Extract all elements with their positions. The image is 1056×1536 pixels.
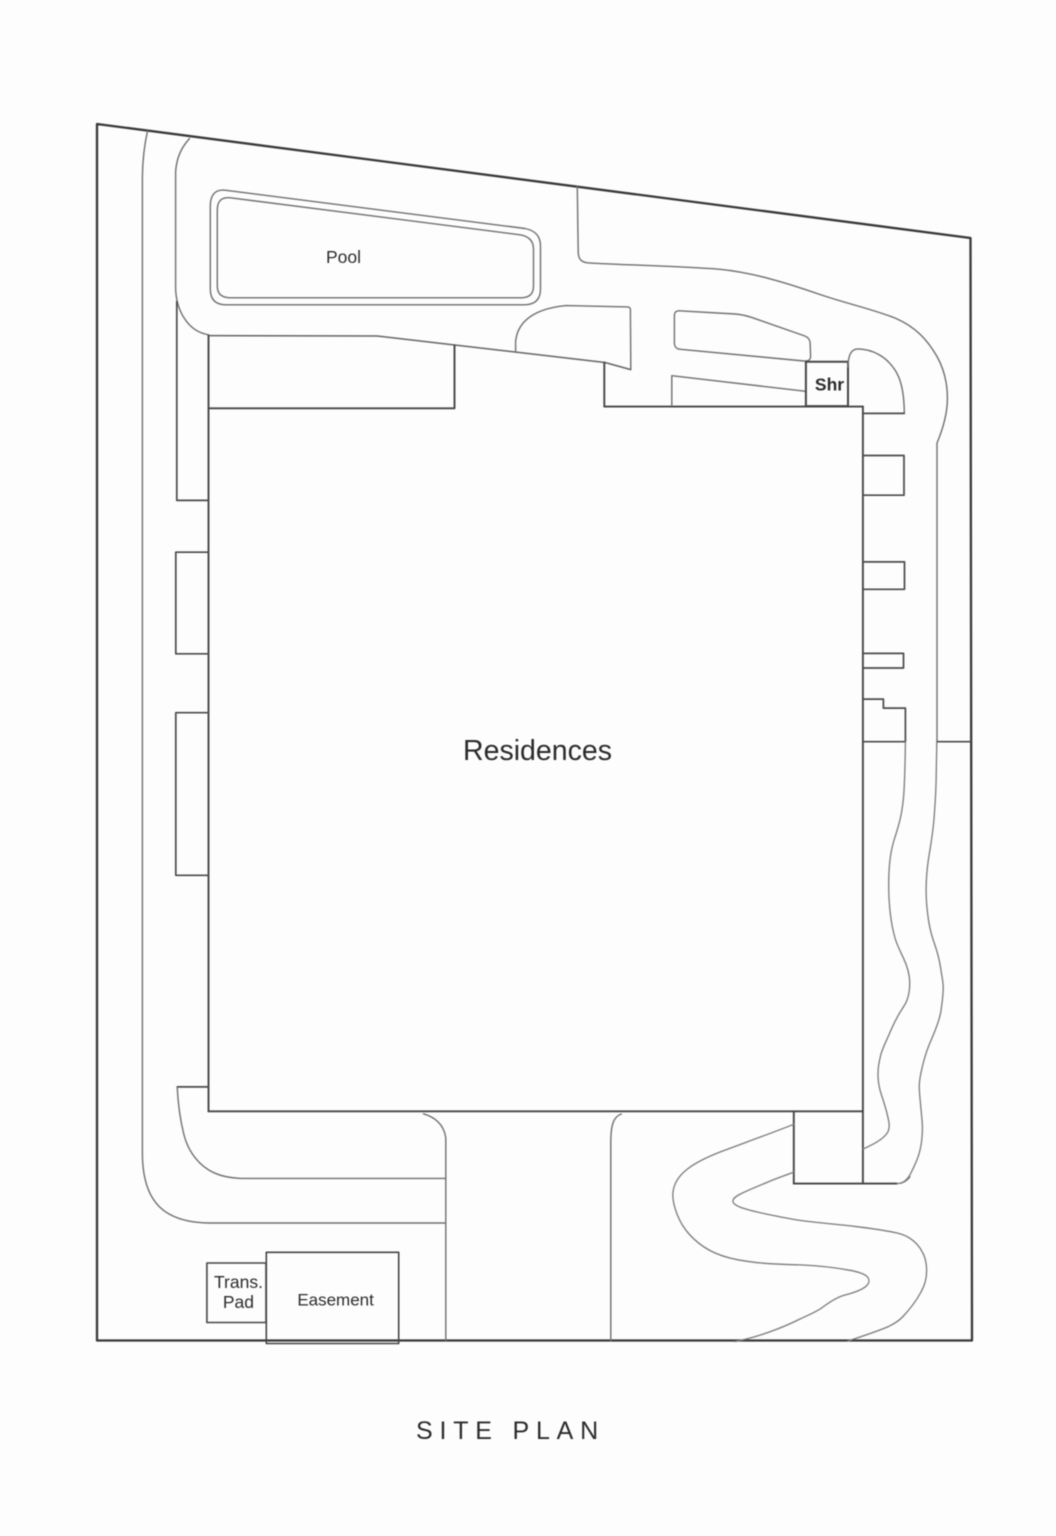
- svg-text:Trans.: Trans.: [214, 1272, 263, 1292]
- svg-text:SITE PLAN: SITE PLAN: [416, 1417, 605, 1445]
- svg-text:Easement: Easement: [297, 1291, 374, 1310]
- svg-text:Residences: Residences: [463, 735, 612, 767]
- svg-text:Pool: Pool: [326, 247, 361, 267]
- svg-text:Pad: Pad: [223, 1292, 254, 1312]
- svg-text:Shr: Shr: [815, 375, 844, 395]
